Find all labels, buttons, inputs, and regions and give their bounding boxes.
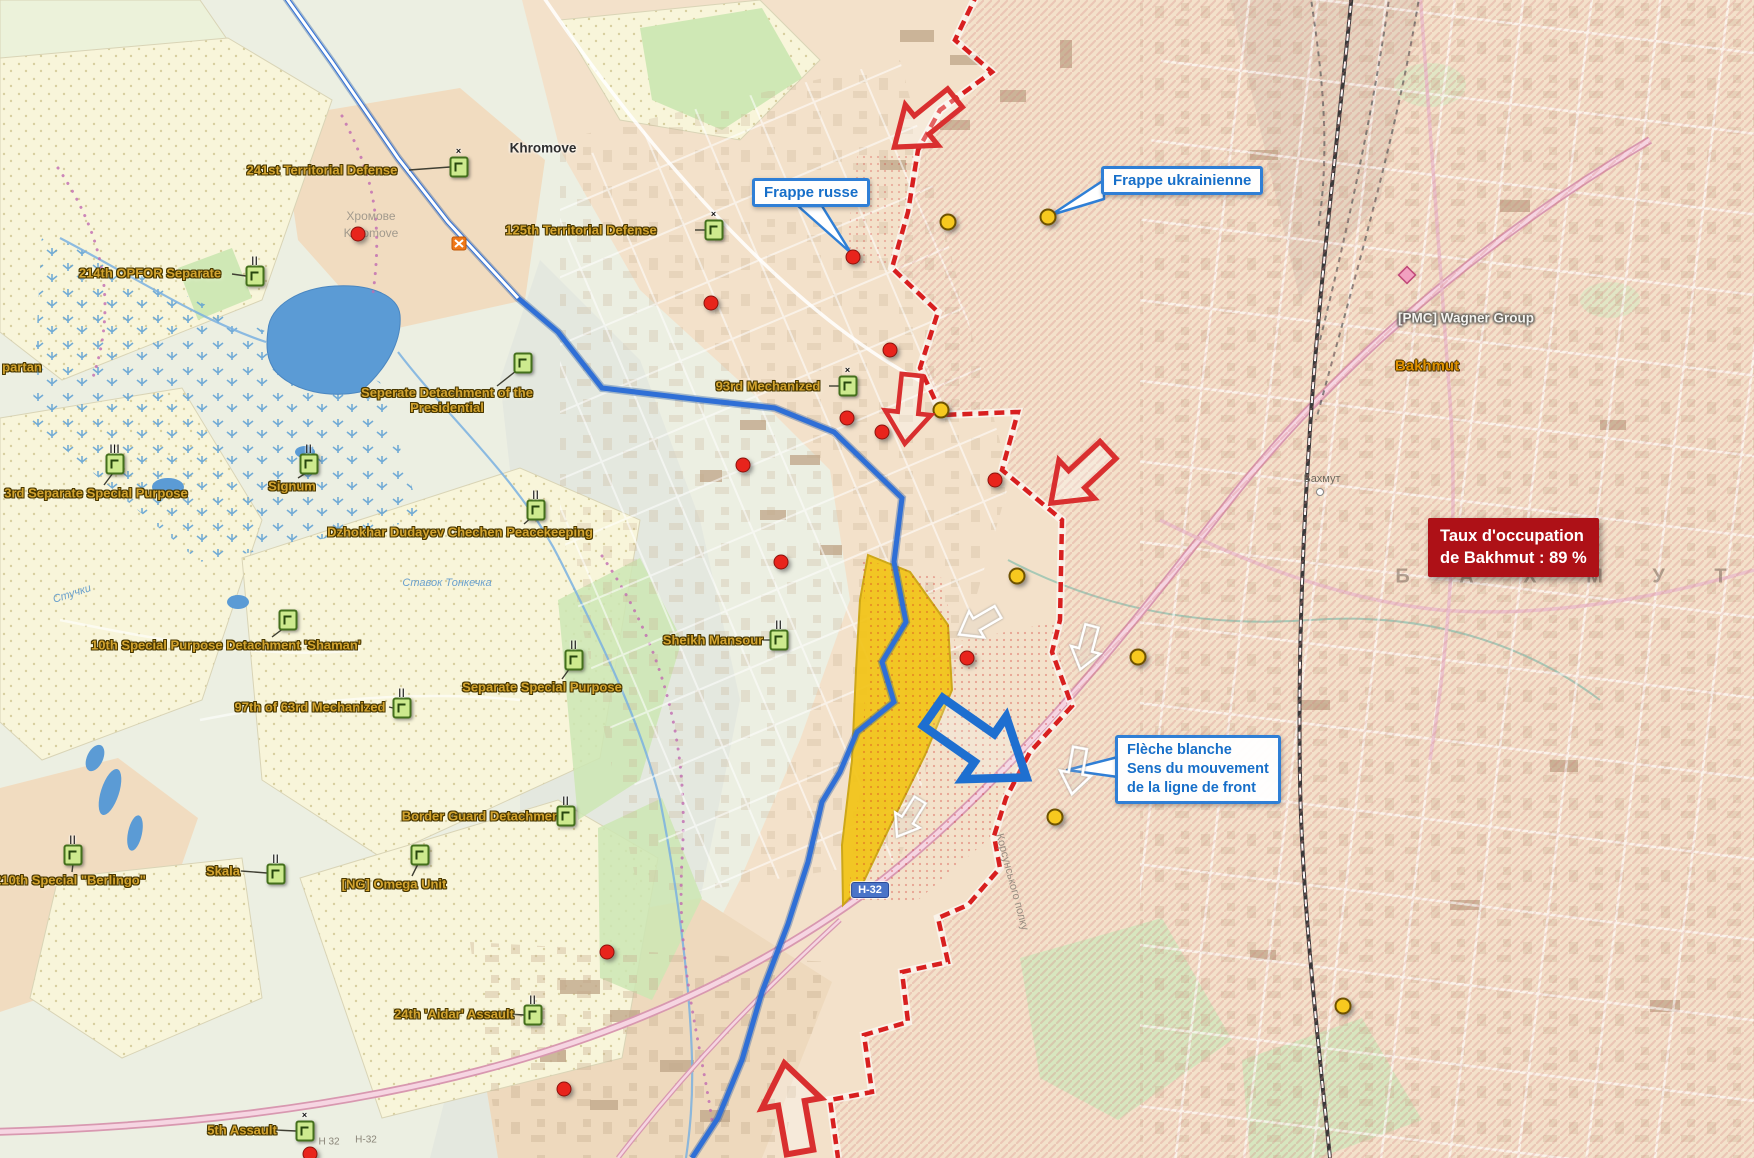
unit-label: 210th Special "Berlingo" (0, 873, 146, 888)
unit-symbol-icon[interactable] (267, 864, 286, 885)
russian-strike-dot[interactable] (883, 343, 898, 358)
unit-echelon: || (398, 687, 405, 697)
ukrainian-strike-dot[interactable] (1047, 809, 1064, 826)
ukrainian-strike-dot[interactable] (940, 214, 957, 231)
unit-label: 5th Assault (207, 1123, 277, 1138)
unit-symbol-icon[interactable] (557, 806, 576, 827)
unit-symbol-icon[interactable] (246, 266, 265, 287)
unit-label: 241st Territorial Defense (247, 163, 398, 178)
unit-label: 93rd Mechanized (716, 379, 821, 394)
unit-symbol-icon[interactable] (514, 353, 533, 374)
russian-strike-dot[interactable] (351, 227, 366, 242)
place-label: H-32 (355, 1135, 377, 1146)
fleche-line-3: de la ligne de front (1127, 779, 1269, 798)
callout-frappe-ukrainienne: Frappe ukrainienne (1101, 166, 1263, 195)
place-label: [PMC] Wagner Group (1398, 311, 1534, 326)
russian-strike-dot[interactable] (736, 458, 751, 473)
callout-frappe-ukrainienne-label: Frappe ukrainienne (1113, 172, 1251, 189)
unit-symbol-icon[interactable] (279, 610, 298, 631)
callout-frappe-russe: Frappe russe (752, 178, 870, 207)
place-label: Khromove (510, 141, 577, 156)
unit-label: Dzhokhar Dudayev Chechen Peacekeeping (327, 525, 593, 540)
place-label: Ставок Тонкечка (402, 577, 491, 589)
unit-label: 24th 'Aidar' Assault (394, 1007, 514, 1022)
unit-symbol-icon[interactable] (527, 500, 546, 521)
road-shield-h32: H-32 (851, 882, 889, 898)
unit-symbol-icon[interactable] (64, 845, 83, 866)
unit-echelon: || (562, 795, 569, 805)
unit-symbol-icon[interactable] (524, 1005, 543, 1026)
unit-echelon: || (529, 994, 536, 1004)
unit-echelon: || (532, 489, 539, 499)
unit-symbol-icon[interactable] (705, 220, 724, 241)
place-label: H 32 (318, 1137, 339, 1148)
occupation-rate-box: Taux d'occupation de Bakhmut : 89 % (1428, 518, 1599, 577)
callout-frappe-russe-label: Frappe russe (764, 184, 858, 201)
place-label: Хромове (346, 209, 395, 223)
fleche-line-2: Sens du mouvement (1127, 760, 1269, 779)
marker-layer: 241st Territorial Defense×125th Territor… (0, 0, 1754, 1158)
unit-symbol-icon[interactable] (296, 1121, 315, 1142)
unit-echelon: × (302, 1110, 308, 1120)
russian-strike-dot[interactable] (600, 945, 615, 960)
unit-label: 10th Special Purpose Detachment 'Shaman' (91, 638, 361, 653)
place-label: Бахмут (1303, 473, 1340, 485)
unit-symbol-icon[interactable] (106, 454, 125, 475)
unit-symbol-icon[interactable] (450, 157, 469, 178)
fleche-line-1: Flèche blanche (1127, 741, 1269, 760)
bakhmut-situation-map[interactable]: 241st Territorial Defense×125th Territor… (0, 0, 1754, 1158)
unit-symbol-icon[interactable] (393, 698, 412, 719)
unit-label: Separate Special Purpose (462, 680, 622, 695)
unit-label: 3rd Separate Special Purpose (4, 486, 188, 501)
unit-echelon: × (711, 209, 717, 219)
unit-label: 214th OPFOR Separate (79, 266, 221, 281)
unit-echelon: × (845, 365, 851, 375)
russian-strike-dot[interactable] (557, 1082, 572, 1097)
place-label: Стучки (51, 582, 92, 606)
place-label: Корсунського полку (993, 832, 1030, 931)
ukrainian-strike-dot[interactable] (1040, 209, 1057, 226)
callout-fleche-blanche: Flèche blanche Sens du mouvement de la l… (1115, 735, 1281, 804)
unit-echelon: || (69, 834, 76, 844)
unit-label: Sheikh Mansour (663, 633, 763, 648)
unit-label: 97th of 63rd Mechanized (235, 700, 386, 715)
unit-label: 125th Territorial Defense (505, 223, 656, 238)
unit-echelon: ||| (110, 443, 121, 453)
place-label: Bakhmut (1395, 358, 1459, 375)
occupation-rate-line-2: de Bakhmut : 89 % (1440, 547, 1587, 569)
ukrainian-strike-dot[interactable] (1335, 998, 1352, 1015)
unit-label: Skala (206, 864, 240, 879)
russian-strike-dot[interactable] (303, 1147, 318, 1158)
unit-label: Seperate Detachment of the Presidential (361, 385, 533, 415)
unit-symbol-icon[interactable] (411, 845, 430, 866)
ukrainian-strike-dot[interactable] (1009, 568, 1026, 585)
unit-label: Signum (268, 479, 316, 494)
russian-strike-dot[interactable] (846, 250, 861, 265)
unit-symbol-icon[interactable] (839, 376, 858, 397)
unit-echelon: || (570, 639, 577, 649)
russian-strike-dot[interactable] (840, 411, 855, 426)
unit-echelon: || (775, 619, 782, 629)
russian-strike-dot[interactable] (988, 473, 1003, 488)
unit-symbol-icon[interactable] (770, 630, 789, 651)
unit-symbol-icon[interactable] (565, 650, 584, 671)
unit-label: Border Guard Detachment (402, 809, 565, 824)
unit-label: [NG] Omega Unit (342, 877, 447, 892)
unit-echelon: || (305, 443, 312, 453)
unit-label: partan (2, 360, 42, 375)
unit-echelon: × (456, 146, 462, 156)
russian-strike-dot[interactable] (704, 296, 719, 311)
occupation-rate-line-1: Taux d'occupation (1440, 525, 1587, 547)
ukrainian-strike-dot[interactable] (1130, 649, 1147, 666)
unit-echelon: || (251, 255, 258, 265)
unit-echelon: || (272, 853, 279, 863)
unit-symbol-icon[interactable] (300, 454, 319, 475)
russian-strike-dot[interactable] (774, 555, 789, 570)
